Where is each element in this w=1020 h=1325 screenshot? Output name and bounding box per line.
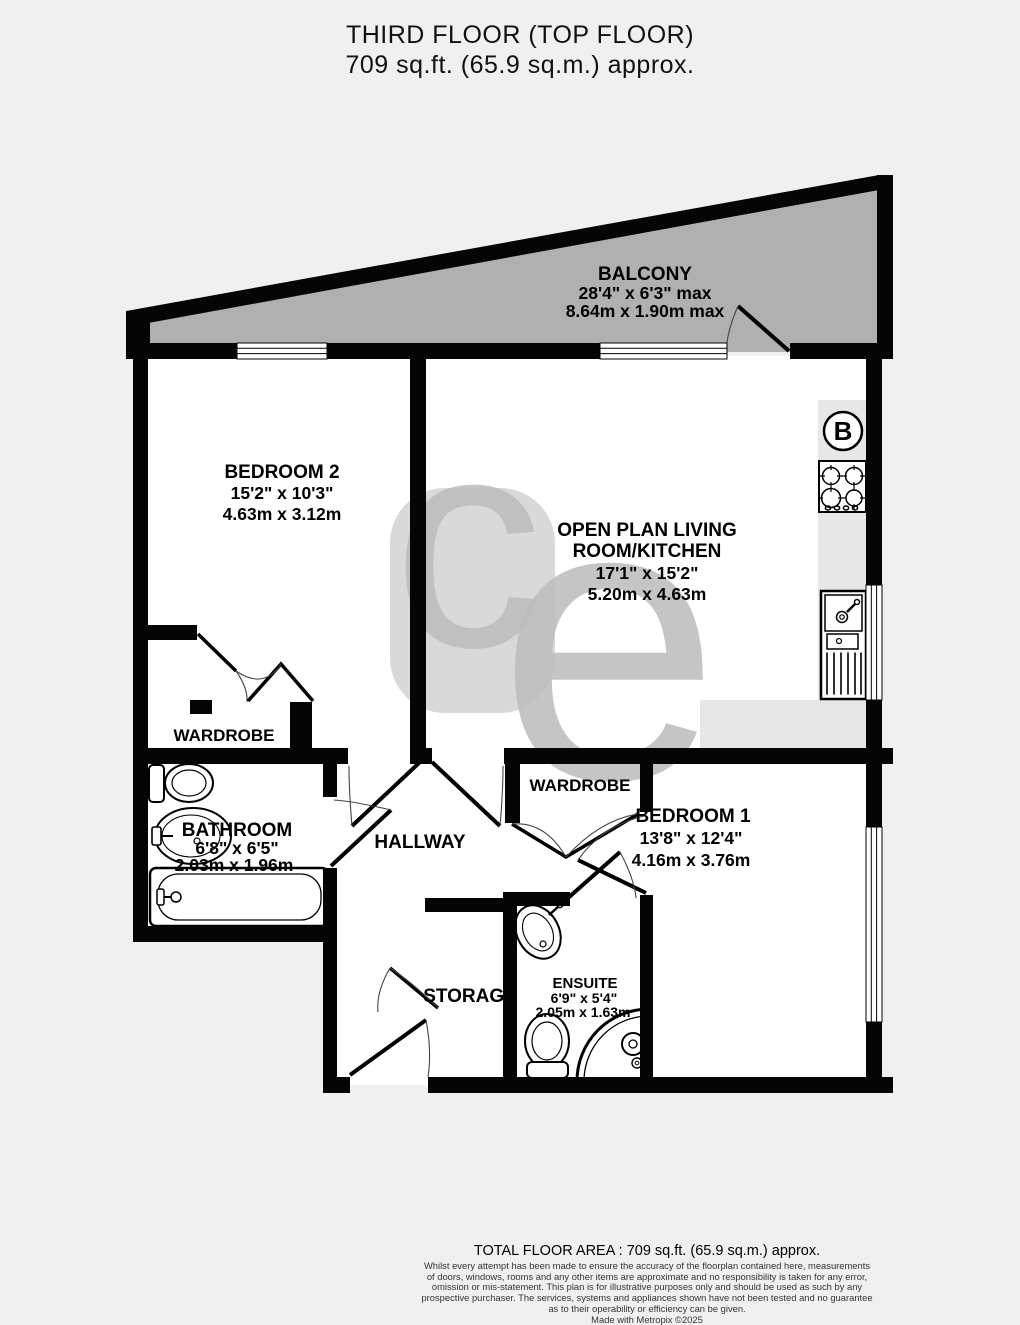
bedroom1-imperial: 13'8" x 12'4" — [640, 828, 743, 848]
bathroom-metric: 2.03m x 1.96m — [175, 855, 294, 875]
hob-icon — [819, 461, 866, 512]
ensuite-metric: 2.05m x 1.63m — [536, 1004, 631, 1020]
boiler-label: B — [834, 416, 853, 446]
kitchen-sink-icon — [821, 591, 866, 699]
hallway-label: HALLWAY — [374, 832, 465, 853]
disclaimer: Whilst every attempt has been made to en… — [275, 1261, 1019, 1325]
metropix-credit: Made with Metropix ©2025 — [275, 1315, 1019, 1325]
balcony-metric: 8.64m x 1.90m max — [566, 301, 725, 321]
ensuite-toilet-icon — [525, 1014, 569, 1078]
bedroom2-name: BEDROOM 2 — [224, 462, 339, 483]
bath-icon — [150, 868, 328, 926]
toilet-icon — [149, 764, 213, 802]
bedroom2-metric: 4.63m x 3.12m — [223, 504, 342, 524]
boiler-indicator: B — [824, 412, 862, 450]
living-room-window — [600, 343, 727, 359]
bedroom2-label: BEDROOM 2 15'2" x 10'3" 4.63m x 3.12m — [223, 462, 342, 524]
total-floor-area: TOTAL FLOOR AREA : 709 sq.ft. (65.9 sq.m… — [275, 1243, 1019, 1259]
floorplan-page: THIRD FLOOR (TOP FLOOR) 709 sq.ft. (65.9… — [0, 0, 1020, 1321]
living-imperial: 17'1" x 15'2" — [596, 563, 699, 583]
bedroom2-imperial: 15'2" x 10'3" — [231, 483, 334, 503]
bedroom1-window — [866, 827, 882, 1022]
living-name-line1: OPEN PLAN LIVING — [557, 520, 736, 541]
floorplan-drawing: c e B — [0, 0, 1020, 1321]
bedroom2-window — [237, 343, 327, 359]
bedroom1-label: BEDROOM 1 13'8" x 12'4" 4.16m x 3.76m — [632, 806, 751, 870]
living-name-line2: ROOM/KITCHEN — [573, 541, 722, 562]
kitchen-side-window — [866, 585, 882, 700]
balcony-imperial: 28'4" x 6'3" max — [579, 283, 712, 303]
watermark-e-letter: e — [498, 416, 720, 863]
disclaimer-line: as to their operability or efficiency ca… — [275, 1304, 1019, 1315]
living-metric: 5.20m x 4.63m — [588, 584, 707, 604]
balcony-name: BALCONY — [598, 264, 692, 285]
wardrobe-left-label: WARDROBE — [173, 726, 274, 745]
bedroom1-metric: 4.16m x 3.76m — [632, 850, 751, 870]
wardrobe-right-label: WARDROBE — [529, 776, 630, 795]
storage-label: STORAGE — [423, 986, 517, 1007]
